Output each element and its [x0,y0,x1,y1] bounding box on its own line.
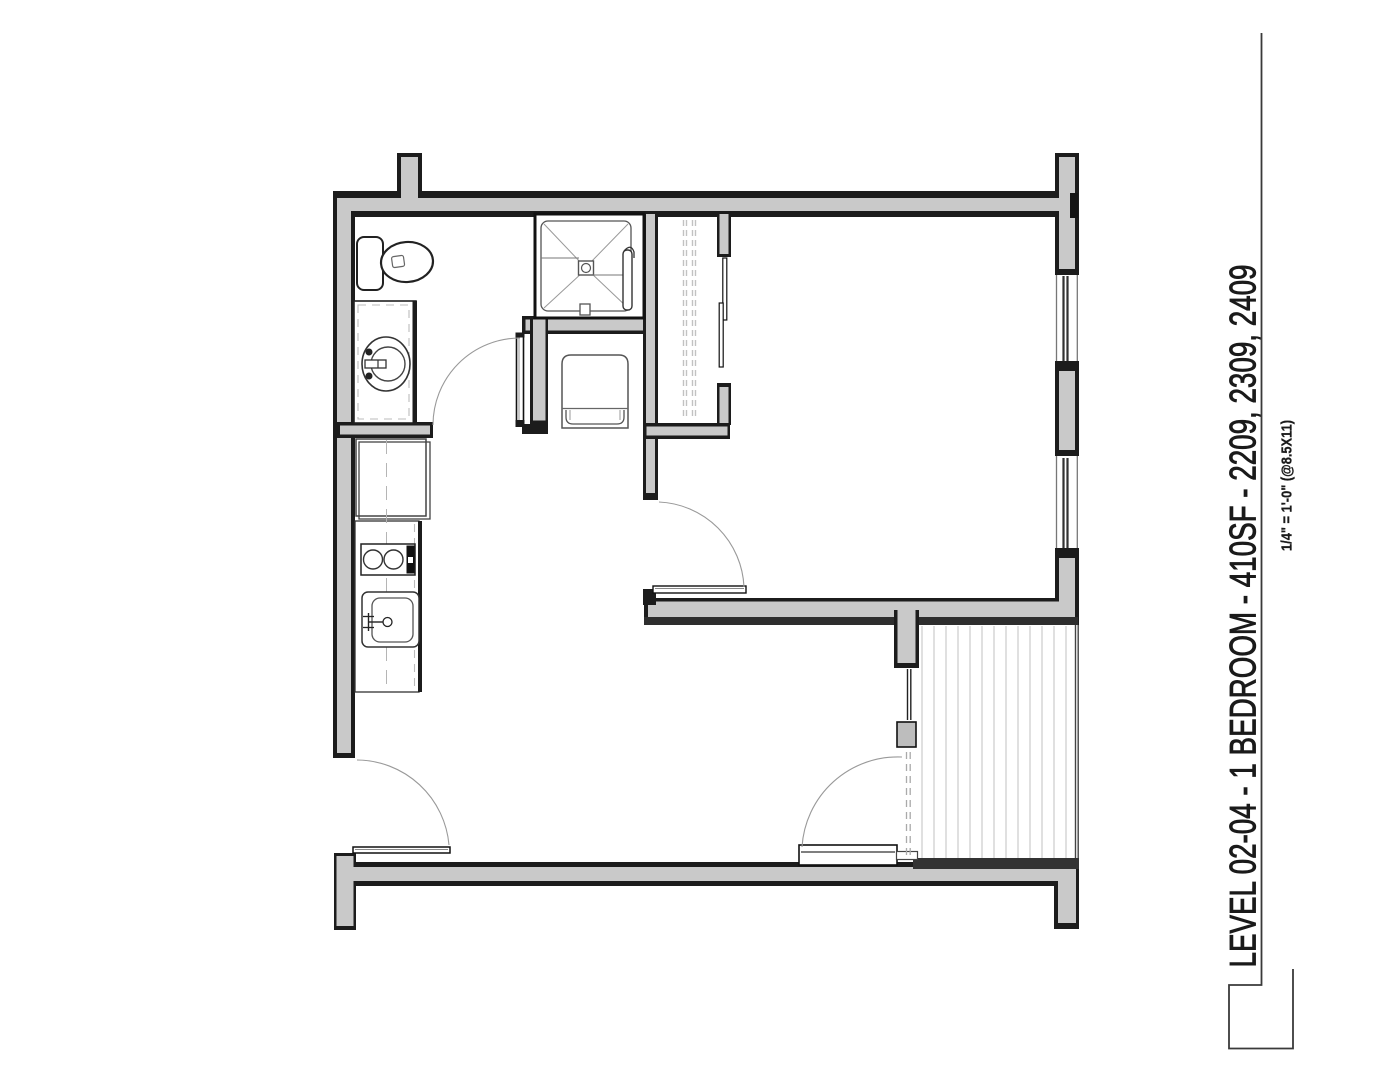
svg-text:LEVEL 02-04 - 1 BEDROOM - 410S: LEVEL 02-04 - 1 BEDROOM - 410SF - 2209, … [1223,265,1264,968]
svg-text:1/4" = 1'-0" (@8.5X11): 1/4" = 1'-0" (@8.5X11) [1279,420,1296,551]
